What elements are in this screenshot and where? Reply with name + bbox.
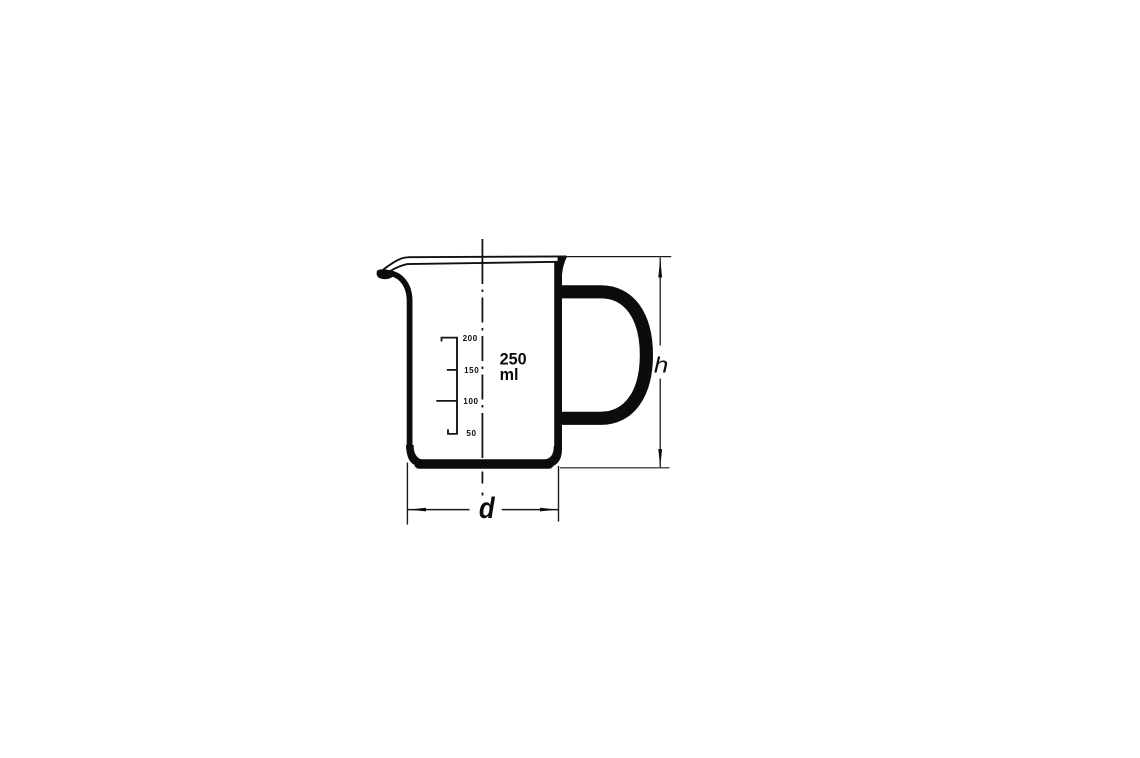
svg-text:150: 150 <box>464 366 479 375</box>
svg-text:200: 200 <box>463 334 478 343</box>
svg-text:ml: ml <box>500 366 519 384</box>
svg-text:50: 50 <box>466 429 476 438</box>
svg-text:100: 100 <box>463 397 478 406</box>
svg-text:h: h <box>654 353 668 378</box>
svg-text:d: d <box>479 492 496 525</box>
